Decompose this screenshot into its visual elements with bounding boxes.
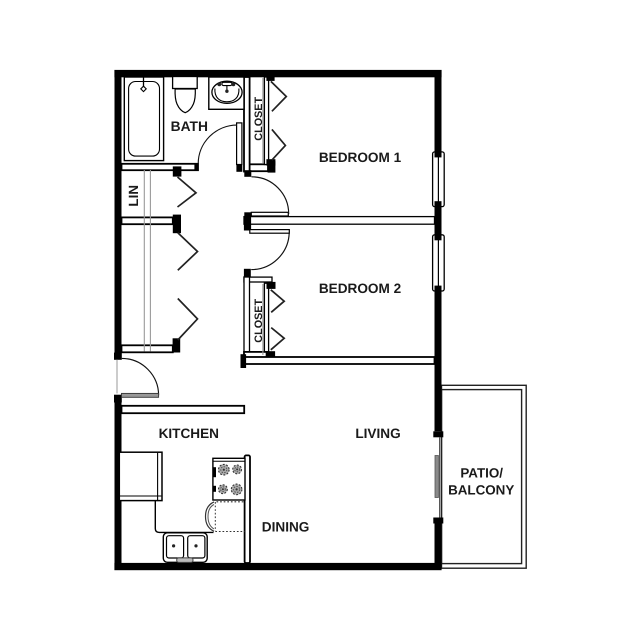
svg-text:BEDROOM 2: BEDROOM 2 <box>319 281 402 296</box>
svg-text:DINING: DINING <box>262 520 310 535</box>
svg-text:KITCHEN: KITCHEN <box>159 426 219 441</box>
svg-text:CLOSET: CLOSET <box>253 299 265 343</box>
svg-text:LIVING: LIVING <box>355 426 400 441</box>
svg-text:BATH: BATH <box>171 119 208 134</box>
svg-text:PATIO/: PATIO/ <box>460 466 503 481</box>
svg-text:BALCONY: BALCONY <box>448 483 514 498</box>
svg-text:BEDROOM 1: BEDROOM 1 <box>319 150 402 165</box>
svg-text:CLOSET: CLOSET <box>253 97 265 141</box>
svg-text:LIN: LIN <box>126 185 141 207</box>
